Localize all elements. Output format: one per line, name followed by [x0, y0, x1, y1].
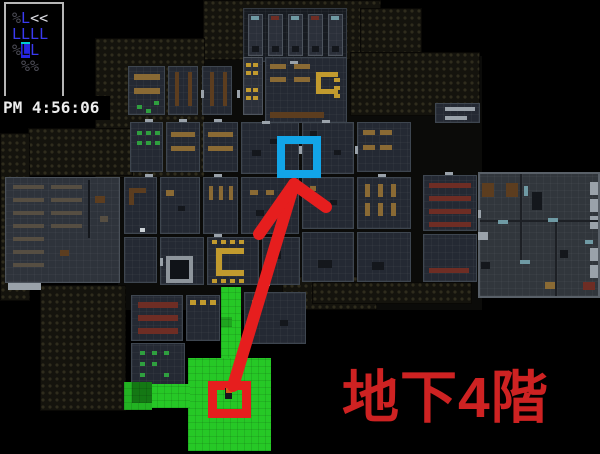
map-furniture [214, 174, 222, 177]
map-furniture [365, 184, 370, 197]
map-furniture [334, 94, 340, 98]
map-furniture [164, 373, 169, 377]
map-furniture [256, 210, 264, 216]
map-furniture [210, 72, 214, 106]
map-room [202, 66, 232, 115]
map-furniture [51, 224, 82, 228]
map-wall [312, 282, 472, 304]
map-room [357, 232, 411, 282]
map-furniture [478, 232, 488, 240]
map-furniture [272, 251, 281, 259]
map-furniture [429, 183, 471, 188]
map-furniture [590, 265, 598, 278]
map-furniture [212, 240, 217, 244]
map-furniture [270, 139, 277, 144]
stairs-room-marker [166, 256, 193, 283]
map-furniture [246, 63, 251, 67]
map-furniture [100, 216, 108, 222]
map-furniture [13, 198, 44, 202]
map-furniture [154, 101, 159, 105]
map-furniture [201, 90, 204, 98]
map-furniture [250, 190, 258, 195]
map-furniture [246, 71, 251, 75]
map-furniture [355, 146, 358, 154]
map-furniture [208, 132, 233, 137]
map-furniture [429, 196, 471, 201]
route-highlight [150, 384, 190, 408]
map-furniture [280, 320, 288, 326]
map-furniture [334, 150, 341, 155]
status-line: %L<< [12, 10, 62, 26]
map-wall [40, 285, 126, 411]
route-highlight [221, 317, 232, 327]
map-furniture [590, 248, 598, 261]
map-furniture [221, 240, 226, 244]
map-furniture [294, 64, 310, 69]
map-furniture [445, 116, 467, 120]
map-furniture [137, 105, 142, 109]
map-furniture [246, 88, 251, 92]
map-furniture [322, 120, 330, 123]
status-glyph: %% [12, 57, 39, 75]
map-furniture [175, 72, 179, 106]
map-furniture [332, 46, 339, 52]
map-room [124, 237, 157, 283]
map-furniture [590, 182, 598, 195]
map-furniture [334, 78, 340, 82]
map-furniture [445, 172, 453, 175]
map-furniture [88, 180, 90, 238]
map-furniture [137, 141, 142, 145]
map-furniture [237, 90, 240, 98]
map-furniture [445, 107, 475, 111]
status-panel: %L<<LLLL%LL %% [4, 2, 64, 104]
map-furniture [270, 77, 286, 82]
map-room [168, 66, 198, 115]
map-room [435, 103, 480, 123]
map-furniture [145, 174, 153, 177]
map-furniture [155, 141, 160, 145]
map-furniture [272, 46, 279, 52]
map-furniture [146, 141, 151, 145]
map-furniture [312, 46, 319, 52]
map-furniture [13, 250, 44, 254]
map-furniture [380, 145, 392, 150]
map-room [241, 177, 299, 234]
map-furniture [134, 88, 160, 94]
map-furniture [294, 77, 310, 82]
map-furniture [51, 198, 82, 202]
map-furniture [253, 88, 258, 92]
map-room [207, 237, 259, 285]
map-furniture [253, 96, 258, 100]
map-furniture [239, 279, 244, 283]
map-furniture [146, 109, 151, 113]
status-line: %% [12, 58, 62, 74]
status-line: LLLL [12, 26, 62, 42]
map-furniture [221, 279, 226, 283]
map-furniture [210, 300, 216, 305]
map-furniture [378, 174, 386, 177]
map-furniture [166, 190, 174, 196]
map-furniture [230, 279, 235, 283]
map-furniture [498, 220, 508, 224]
map-furniture [209, 186, 213, 200]
map-furniture [520, 260, 530, 264]
map-furniture [311, 16, 319, 20]
map-furniture [13, 224, 44, 228]
map-furniture [292, 46, 299, 52]
map-furniture [482, 183, 494, 197]
map-furniture [363, 130, 375, 135]
player-sprite-head [226, 388, 232, 393]
map-furniture [252, 46, 259, 52]
map-furniture [380, 130, 392, 135]
map-furniture [429, 222, 471, 227]
map-furniture [270, 112, 324, 118]
map-furniture [585, 240, 593, 244]
route-highlight [132, 382, 152, 403]
map-furniture [545, 282, 555, 289]
map-furniture [223, 72, 227, 106]
map-furniture [318, 260, 332, 268]
map-furniture [60, 250, 69, 256]
map-furniture [152, 362, 157, 366]
map-furniture [481, 262, 490, 269]
map-furniture [138, 302, 178, 308]
map-furniture [152, 351, 157, 355]
map-furniture [138, 328, 178, 334]
map-furniture [429, 268, 469, 273]
map-furniture [171, 146, 195, 151]
map-furniture [200, 300, 206, 305]
map-furniture [51, 211, 82, 215]
map-furniture [331, 16, 339, 20]
map-furniture [146, 131, 151, 135]
map-furniture [252, 150, 261, 156]
map-furniture [216, 248, 244, 254]
floor-label: 地下4階 [342, 352, 549, 434]
map-furniture [555, 222, 557, 296]
map-furniture [253, 63, 258, 67]
map-furniture [291, 16, 299, 20]
map-furniture [13, 185, 44, 189]
map-furniture [140, 228, 145, 232]
map-furniture [13, 211, 44, 215]
map-furniture [271, 16, 279, 20]
map-furniture [372, 262, 384, 270]
map-furniture [478, 210, 481, 218]
map-furniture [214, 119, 222, 122]
player-marker [208, 381, 251, 418]
map-wall [28, 128, 133, 176]
map-furniture [316, 72, 338, 77]
map-furniture [262, 283, 270, 286]
map-furniture [216, 270, 244, 276]
map-room [302, 232, 354, 282]
map-furniture [532, 192, 542, 210]
map-furniture [590, 216, 598, 229]
map-room [302, 177, 354, 229]
map-furniture [140, 351, 145, 355]
map-furniture [334, 86, 340, 90]
map-furniture [138, 315, 178, 321]
map-furniture [190, 300, 196, 305]
clock: PM 4:56:06 [0, 96, 110, 120]
map-furniture [363, 145, 375, 150]
map-furniture [164, 351, 169, 355]
map-furniture [590, 199, 598, 212]
map-room [130, 122, 163, 172]
map-furniture [378, 203, 383, 216]
map-furniture [212, 279, 217, 283]
map-furniture [51, 185, 82, 189]
map-furniture [230, 240, 235, 244]
map-furniture [548, 218, 558, 222]
map-furniture [310, 186, 316, 191]
map-furniture [330, 200, 337, 205]
selected-unit-glyph: L [21, 42, 30, 58]
map-furniture [391, 203, 396, 216]
map-furniture [129, 188, 134, 205]
map-furniture [171, 132, 195, 137]
map-furniture [262, 121, 270, 124]
map-furniture [179, 119, 187, 122]
map-furniture [214, 234, 222, 237]
map-furniture [137, 131, 142, 135]
status-panel-lines: %L<<LLLL%LL %% [12, 10, 62, 74]
map-wall [360, 8, 422, 58]
map-furniture [583, 282, 595, 290]
map-furniture [229, 186, 233, 200]
map-room [478, 172, 600, 298]
map-furniture [178, 206, 185, 211]
status-line: %LL [12, 42, 62, 58]
map-furniture [560, 250, 568, 258]
map-room [124, 177, 157, 234]
map-furniture [140, 373, 145, 377]
map-furniture [140, 362, 145, 366]
map-viewport[interactable]: 地下4階 %L<<LLLL%LL %% PM 4:56:06 [0, 0, 600, 454]
map-furniture [378, 184, 383, 197]
map-furniture [160, 258, 163, 266]
destination-marker [277, 136, 321, 178]
map-furniture [290, 61, 298, 64]
map-furniture [520, 222, 522, 262]
map-room [5, 177, 120, 283]
map-furniture [13, 237, 44, 241]
map-furniture [219, 186, 223, 200]
map-furniture [365, 203, 370, 216]
map-furniture [252, 300, 260, 305]
map-furniture [95, 196, 105, 203]
map-furniture [13, 263, 44, 267]
map-furniture [520, 174, 522, 220]
map-furniture [239, 240, 244, 244]
map-furniture [429, 209, 471, 214]
map-room [262, 237, 300, 285]
map-furniture [155, 131, 160, 135]
map-furniture [270, 64, 286, 69]
map-furniture [266, 190, 274, 195]
map-room [423, 234, 477, 282]
map-furniture [253, 71, 258, 75]
map-furniture [145, 119, 153, 122]
map-furniture [506, 183, 518, 197]
map-furniture [391, 184, 396, 197]
map-furniture [524, 186, 528, 196]
map-furniture [188, 72, 192, 106]
map-furniture [134, 74, 160, 80]
map-furniture [251, 16, 259, 20]
map-furniture [246, 96, 251, 100]
map-furniture [8, 283, 41, 290]
map-furniture [208, 146, 233, 151]
